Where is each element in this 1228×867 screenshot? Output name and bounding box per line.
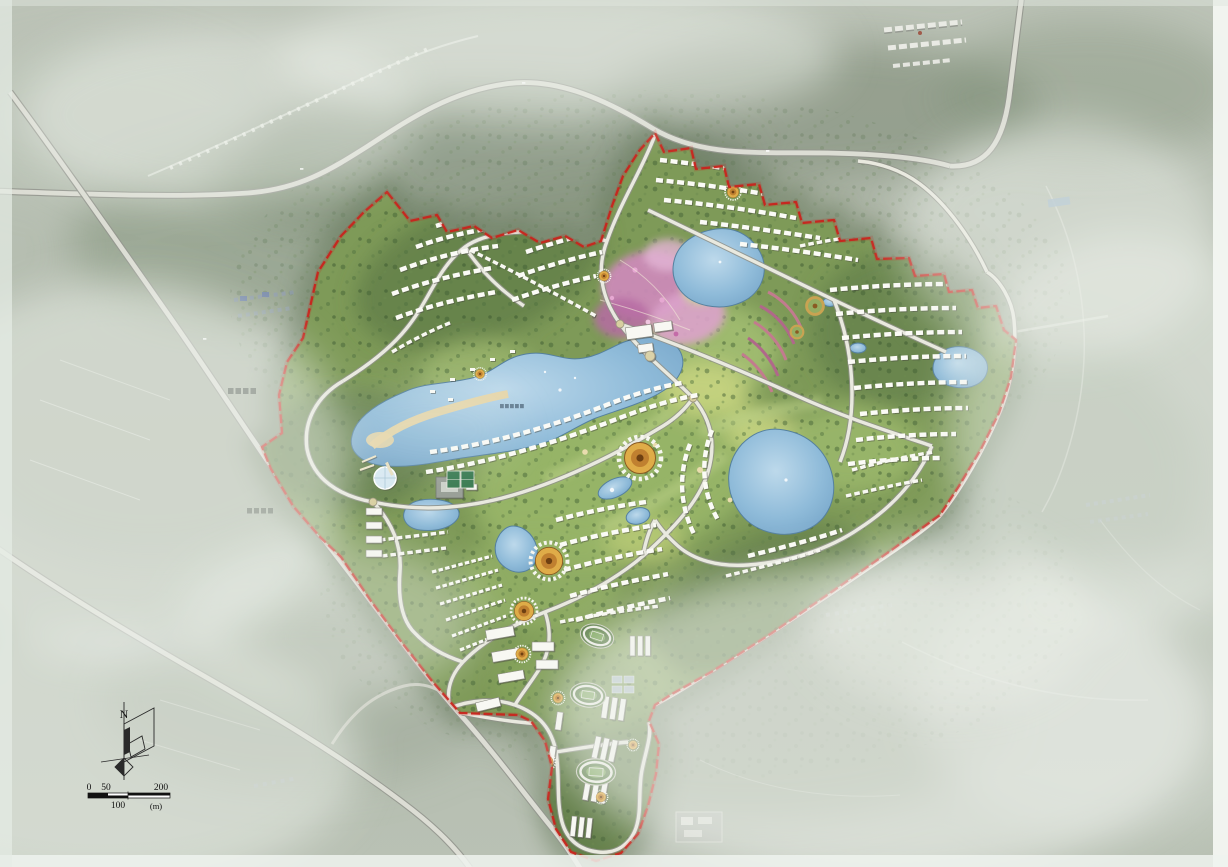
- masterplan-screenshot: N 0 50 200 100 (m): [0, 0, 1228, 867]
- scale-tick-100: 100: [111, 801, 126, 811]
- ring-garden-a: [807, 298, 824, 315]
- scale-tick-200: 200: [154, 783, 169, 793]
- ring-garden-b: [791, 326, 804, 339]
- scale-tick-50: 50: [101, 783, 111, 793]
- scale-unit: (m): [150, 801, 162, 811]
- masterplan-map: N 0 50 200 100 (m): [0, 0, 1228, 867]
- scale-tick-0: 0: [87, 783, 92, 793]
- small-pond-ne: [850, 343, 866, 353]
- north-lake: [673, 229, 764, 307]
